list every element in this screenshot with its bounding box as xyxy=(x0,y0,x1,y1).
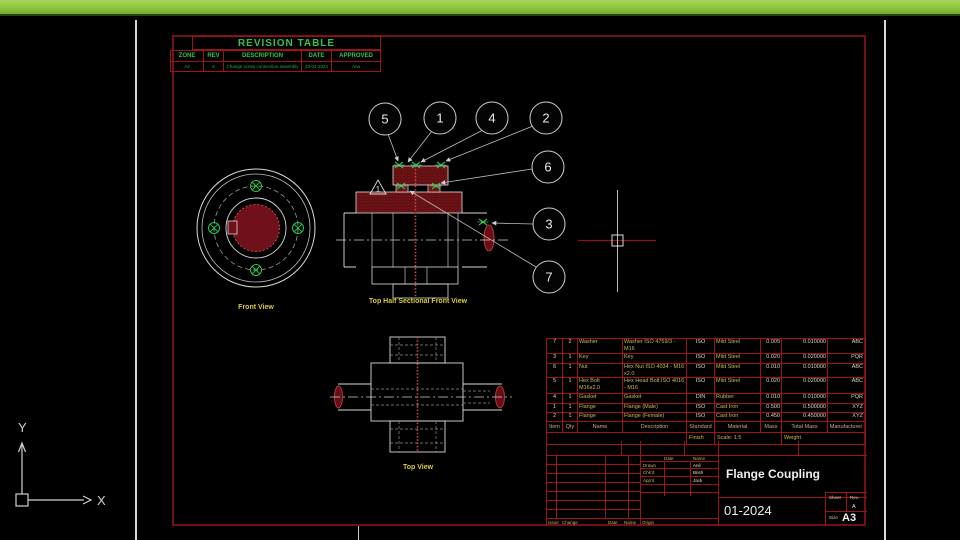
bom-standard: ISO xyxy=(686,354,714,363)
ucs-x-label: X xyxy=(97,493,106,508)
bom-manufacturer: PQR xyxy=(827,354,865,363)
bom-material: Cast Iron xyxy=(714,413,760,421)
checked-label: Chk'd xyxy=(643,470,654,475)
bom-name: Key xyxy=(577,354,622,363)
bom-qty: 1 xyxy=(562,364,577,377)
change-label: Change xyxy=(562,520,578,525)
bom-header-manufacturer: Manufacturer xyxy=(827,422,865,432)
name-label: Name xyxy=(624,520,636,525)
bom-name: Nut xyxy=(577,364,622,377)
bom-standard: DIN xyxy=(686,394,714,403)
balloon-number: 2 xyxy=(542,111,549,126)
balloon-2[interactable]: 2 xyxy=(530,102,562,134)
bom-item: 4 xyxy=(547,394,562,403)
bom-standard: ISO xyxy=(686,364,714,377)
bom-qty: 1 xyxy=(562,378,577,393)
bom-manufacturer: ABC xyxy=(827,378,865,393)
bom-description: Washer ISO 4759/3 - M16 xyxy=(622,339,686,353)
issue-label: Issue xyxy=(548,520,559,525)
key-section-icon[interactable] xyxy=(478,219,489,225)
balloon-number: 6 xyxy=(544,160,551,175)
drawing-title[interactable]: Flange Coupling xyxy=(726,467,820,481)
bom-name: Hex Bolt M16x2.0 xyxy=(577,378,622,393)
balloon-number: 1 xyxy=(436,111,443,126)
bom-item: 6 xyxy=(547,364,562,377)
bom-header-standard: Standard xyxy=(686,422,714,432)
balloon-1[interactable]: 1 xyxy=(424,102,456,134)
bom-row[interactable]: 3 1 Key Key ISO Mild Steel 0.020 0.02000… xyxy=(547,353,865,363)
balloon-6[interactable]: 6 xyxy=(532,151,564,183)
bom-mass: 0.010 xyxy=(760,394,781,403)
ucs-y-label: Y xyxy=(18,420,27,435)
date-header: Date xyxy=(664,456,674,461)
bom-name: Washer xyxy=(577,339,622,353)
bom-description: Flange (Female) xyxy=(622,413,686,421)
front-view[interactable] xyxy=(197,169,315,287)
bom-name: Gasket xyxy=(577,394,622,403)
sheet-label: Sheet xyxy=(829,495,841,500)
bom-manufacturer: ABC xyxy=(827,364,865,377)
bom-mass: 0.500 xyxy=(760,404,781,412)
balloon-5[interactable]: 5 xyxy=(369,103,401,135)
bom-description: Flange (Male) xyxy=(622,404,686,412)
bom-item: 7 xyxy=(547,339,562,353)
drawn-name: Anil xyxy=(693,463,701,468)
bom-header-name: Name xyxy=(577,422,622,432)
approved-name: Jack xyxy=(693,478,702,483)
bom-row[interactable]: 2 1 Flange Flange (Female) ISO Cast Iron… xyxy=(547,412,865,421)
bom-description: Hex Head Bolt ISO 4016 - M16 xyxy=(622,378,686,393)
bom-qty: 1 xyxy=(562,413,577,421)
bom-mass: 0.020 xyxy=(760,378,781,393)
bom-row[interactable]: 5 1 Hex Bolt M16x2.0 Hex Head Bolt ISO 4… xyxy=(547,377,865,393)
bom-total-mass: 0.500000 xyxy=(781,404,827,412)
bom-header-total-mass: Total Mass xyxy=(781,422,827,432)
top-view[interactable] xyxy=(330,337,512,452)
bom-material: Cast Iron xyxy=(714,404,760,412)
shaft-end[interactable] xyxy=(484,225,494,251)
title-block[interactable]: Date Name Drawn Chk'd App'd Anil Brish J… xyxy=(546,441,867,526)
bom-material: Mild Steel xyxy=(714,364,760,377)
balloon-4[interactable]: 4 xyxy=(476,102,508,134)
bom-manufacturer: XYZ xyxy=(827,404,865,412)
bom-mass: 0.020 xyxy=(760,354,781,363)
bom-header-row: Item Qty Name Description Standard Mater… xyxy=(547,421,865,432)
bom-material: Mild Steel xyxy=(714,354,760,363)
bom-header-item: Item xyxy=(547,422,562,432)
bom-total-mass: 0.010000 xyxy=(781,364,827,377)
bom-row[interactable]: 1 1 Flange Flange (Male) ISO Cast Iron 0… xyxy=(547,403,865,412)
balloon-7[interactable]: 7 xyxy=(533,261,565,293)
bom-table[interactable]: 7 2 Washer Washer ISO 4759/3 - M16 ISO M… xyxy=(546,338,866,445)
bom-qty: 1 xyxy=(562,394,577,403)
bom-item: 3 xyxy=(547,354,562,363)
top-view-label[interactable]: Top View xyxy=(403,464,433,471)
bom-name: Flange xyxy=(577,413,622,421)
bom-item: 1 xyxy=(547,404,562,412)
size-value: A3 xyxy=(842,512,856,524)
bom-header-qty: Qty xyxy=(562,422,577,432)
bom-row[interactable]: 4 1 Gasket Gasket DIN Rubber 0.010 0.010… xyxy=(547,393,865,403)
bom-standard: ISO xyxy=(686,339,714,353)
bom-item: 2 xyxy=(547,413,562,421)
balloon-3[interactable]: 3 xyxy=(533,208,565,240)
drawing-date[interactable]: 01-2024 xyxy=(724,503,772,518)
hidden-lines xyxy=(371,337,490,452)
bom-total-mass: 0.020000 xyxy=(781,378,827,393)
bom-material: Mild Steel xyxy=(714,339,760,353)
bom-header-material: Material xyxy=(714,422,760,432)
bom-total-mass: 0.010000 xyxy=(781,339,827,353)
bom-qty: 2 xyxy=(562,339,577,353)
bom-standard: ISO xyxy=(686,404,714,412)
rev-label: Rev. xyxy=(850,495,859,500)
bom-qty: 1 xyxy=(562,404,577,412)
approved-label: App'd xyxy=(643,478,654,483)
bom-standard: ISO xyxy=(686,413,714,421)
bom-material: Rubber xyxy=(714,394,760,403)
balloon-number: 7 xyxy=(545,270,552,285)
bom-total-mass: 0.010000 xyxy=(781,394,827,403)
bom-standard: ISO xyxy=(686,378,714,393)
bom-manufacturer: XYZ xyxy=(827,413,865,421)
size-label: Size xyxy=(829,515,838,520)
bom-manufacturer: ABC xyxy=(827,339,865,353)
bom-material: Mild Steel xyxy=(714,378,760,393)
name-header: Name xyxy=(693,456,705,461)
crosshair-cursor xyxy=(578,190,656,292)
bom-row[interactable]: 7 2 Washer Washer ISO 4759/3 - M16 ISO M… xyxy=(547,339,865,353)
balloon-number: 5 xyxy=(381,112,388,127)
bom-description: Hex Nut ISO 4034 - M16 x2.0 xyxy=(622,364,686,377)
bom-mass: 0.010 xyxy=(760,364,781,377)
bom-header-mass: Mass xyxy=(760,422,781,432)
bolt-icon[interactable] xyxy=(209,223,220,234)
bom-manufacturer: PQR xyxy=(827,394,865,403)
rev-value: A xyxy=(852,504,856,510)
bom-total-mass: 0.020000 xyxy=(781,354,827,363)
cad-drawing-canvas: REVISION TABLE ZONE REV DESCRIPTION DATE… xyxy=(0,0,960,540)
bom-row[interactable]: 6 1 Nut Hex Nut ISO 4034 - M16 x2.0 ISO … xyxy=(547,363,865,377)
bom-description: Gasket xyxy=(622,394,686,403)
drawn-label: Drawn xyxy=(643,463,656,468)
revision-triangle-number: 1 xyxy=(376,185,381,194)
bom-qty: 1 xyxy=(562,354,577,363)
bom-item: 5 xyxy=(547,378,562,393)
bom-mass: 0.005 xyxy=(760,339,781,353)
checked-name: Brish xyxy=(693,470,703,475)
front-view-label[interactable]: Front View xyxy=(238,304,274,311)
date-label: Date xyxy=(608,520,618,525)
bom-header-description: Description xyxy=(622,422,686,432)
bom-total-mass: 0.450000 xyxy=(781,413,827,421)
sectional-front-view[interactable]: 1 xyxy=(336,162,510,298)
sectional-view-label[interactable]: Top Half Sectional Front View xyxy=(369,298,467,305)
bom-mass: 0.450 xyxy=(760,413,781,421)
balloon-number: 4 xyxy=(488,111,495,126)
bom-description: Key xyxy=(622,354,686,363)
bom-name: Flange xyxy=(577,404,622,412)
ucs-icon: X Y xyxy=(16,420,106,508)
origin-label: Origin xyxy=(642,520,654,525)
balloon-number: 3 xyxy=(545,217,552,232)
bolt-icon[interactable] xyxy=(251,265,262,276)
keyway[interactable] xyxy=(228,221,237,234)
